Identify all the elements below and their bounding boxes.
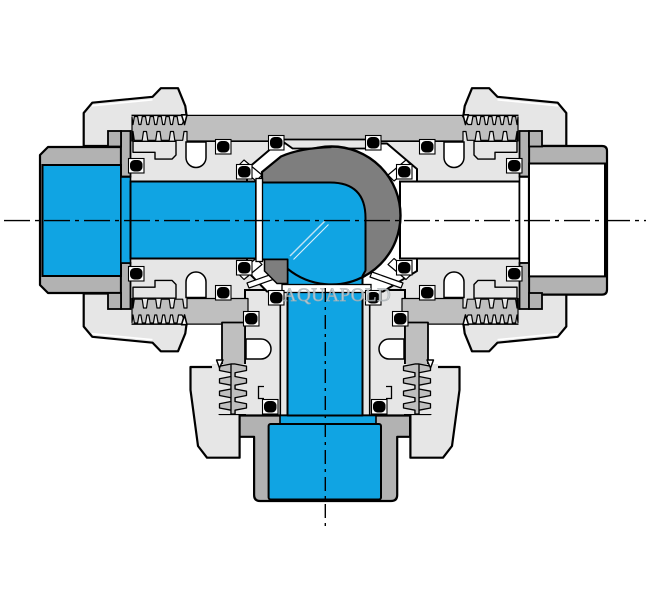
svg-text:AQUAPOLD: AQUAPOLD bbox=[283, 285, 392, 306]
